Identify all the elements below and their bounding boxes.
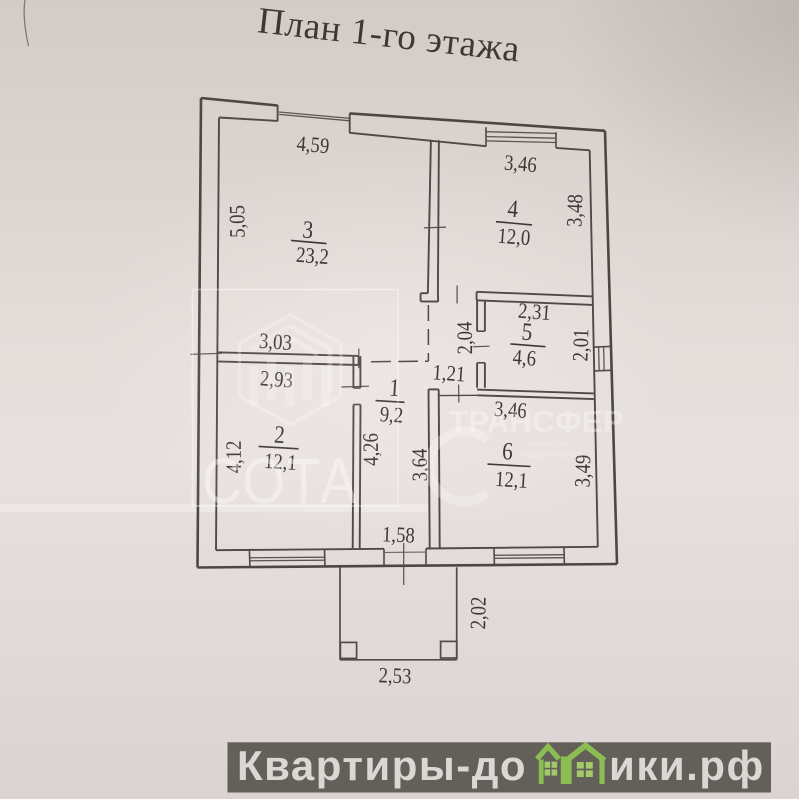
svg-text:4: 4 (507, 195, 520, 224)
svg-text:3,48: 3,48 (563, 194, 588, 227)
svg-text:1,58: 1,58 (382, 523, 416, 548)
svg-text:1,21: 1,21 (432, 361, 466, 387)
svg-text:5,05: 5,05 (226, 205, 250, 238)
svg-text:агентство: агентство (527, 438, 567, 448)
svg-text:недвижимости: недвижимости (522, 449, 583, 459)
svg-text:СОТА: СОТА (202, 445, 359, 517)
svg-text:План 1-го этажа: План 1-го этажа (256, 0, 522, 70)
svg-text:23,2: 23,2 (295, 243, 329, 269)
svg-text:4,6: 4,6 (512, 346, 537, 371)
svg-text:3,49: 3,49 (571, 454, 596, 487)
svg-text:3: 3 (302, 216, 315, 245)
svg-text:Квартиры-до: Квартиры-до (237, 742, 527, 789)
svg-text:ики.рф: ики.рф (609, 742, 765, 789)
svg-text:2,02: 2,02 (467, 596, 491, 629)
svg-text:12,1: 12,1 (494, 468, 528, 494)
svg-text:2,04: 2,04 (453, 321, 477, 354)
svg-text:2,53: 2,53 (378, 664, 412, 689)
svg-text:5: 5 (521, 318, 534, 347)
svg-text:2,01: 2,01 (569, 328, 594, 361)
svg-text:3,46: 3,46 (503, 151, 538, 177)
svg-text:6: 6 (501, 438, 513, 467)
svg-text:4,59: 4,59 (296, 132, 331, 158)
svg-text:12,0: 12,0 (497, 224, 531, 250)
